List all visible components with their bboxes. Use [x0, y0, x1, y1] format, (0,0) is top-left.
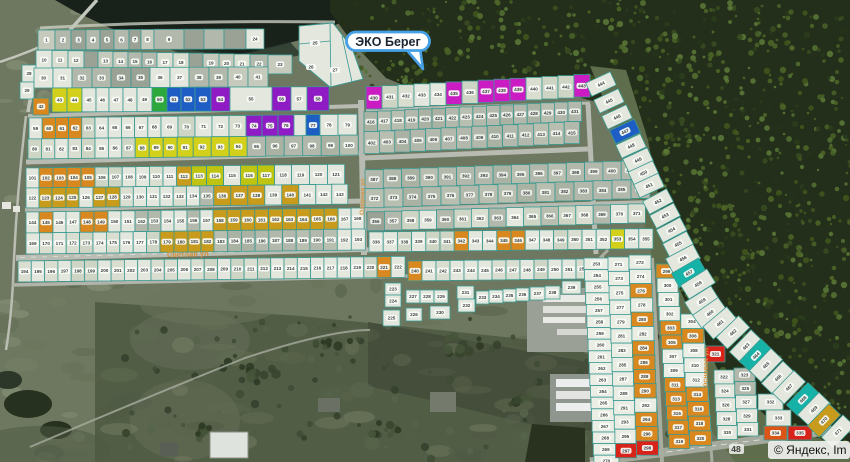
svg-text:220: 220 [367, 265, 375, 270]
svg-text:258: 258 [596, 320, 604, 325]
svg-text:410: 410 [491, 134, 499, 139]
svg-text:173: 173 [82, 241, 90, 246]
svg-text:115: 115 [228, 173, 236, 178]
svg-text:153: 153 [151, 219, 159, 224]
svg-text:14: 14 [118, 59, 124, 64]
svg-text:210: 210 [234, 267, 242, 272]
svg-text:145: 145 [42, 220, 50, 225]
svg-text:321: 321 [712, 352, 720, 357]
svg-text:426: 426 [503, 113, 511, 118]
svg-text:168: 168 [354, 216, 362, 221]
svg-text:440: 440 [530, 86, 538, 91]
svg-text:368: 368 [581, 213, 589, 218]
svg-text:76: 76 [283, 123, 289, 128]
svg-text:142: 142 [320, 192, 328, 197]
svg-text:329: 329 [743, 413, 751, 418]
svg-text:37: 37 [177, 75, 183, 80]
svg-text:82: 82 [59, 146, 65, 151]
svg-text:437: 437 [482, 89, 490, 94]
svg-text:370: 370 [615, 212, 623, 217]
svg-text:322: 322 [720, 375, 728, 380]
svg-text:395: 395 [517, 172, 525, 177]
svg-text:105: 105 [84, 175, 92, 180]
svg-text:166: 166 [327, 217, 335, 222]
svg-text:79: 79 [345, 122, 351, 127]
svg-text:137: 137 [235, 193, 243, 198]
svg-text:60: 60 [46, 126, 52, 131]
svg-text:147: 147 [69, 220, 77, 225]
svg-text:286: 286 [640, 360, 648, 365]
svg-text:441: 441 [546, 85, 554, 90]
svg-text:336: 336 [372, 240, 380, 245]
svg-text:337: 337 [386, 239, 394, 244]
svg-text:24: 24 [252, 37, 258, 42]
svg-text:159: 159 [230, 218, 238, 223]
svg-text:306: 306 [689, 334, 697, 339]
svg-text:© Яндекс, Im: © Яндекс, Im [774, 443, 847, 457]
svg-text:218: 218 [340, 265, 348, 270]
svg-text:344: 344 [486, 238, 494, 243]
svg-text:141: 141 [303, 192, 311, 197]
svg-text:219: 219 [353, 265, 361, 270]
svg-text:162: 162 [272, 217, 280, 222]
svg-text:358: 358 [407, 218, 415, 223]
svg-text:355: 355 [642, 236, 650, 241]
svg-text:163: 163 [286, 217, 294, 222]
svg-text:300: 300 [664, 283, 672, 288]
svg-text:241: 241 [425, 268, 433, 273]
svg-text:126: 126 [82, 195, 90, 200]
svg-text:205: 205 [167, 267, 175, 272]
svg-text:229: 229 [437, 294, 445, 299]
svg-text:223: 223 [389, 287, 397, 292]
svg-text:318: 318 [696, 421, 704, 426]
svg-text:429: 429 [544, 111, 552, 116]
svg-text:96: 96 [272, 144, 278, 149]
svg-text:108: 108 [125, 175, 133, 180]
svg-text:90: 90 [168, 145, 174, 150]
svg-text:287: 287 [619, 377, 627, 382]
svg-text:1: 1 [45, 38, 48, 43]
svg-text:133: 133 [176, 194, 184, 199]
svg-text:369: 369 [598, 212, 606, 217]
svg-text:72: 72 [218, 124, 224, 129]
svg-text:199: 199 [87, 268, 95, 273]
svg-text:412: 412 [522, 133, 530, 138]
svg-text:187: 187 [272, 238, 280, 243]
svg-text:158: 158 [216, 218, 224, 223]
svg-text:256: 256 [594, 296, 602, 301]
svg-text:31: 31 [60, 76, 66, 81]
svg-text:6: 6 [120, 37, 123, 42]
svg-text:74: 74 [251, 124, 257, 129]
svg-text:407: 407 [445, 137, 453, 142]
svg-text:Светлая ул: Светлая ул [167, 249, 209, 259]
svg-text:64: 64 [99, 125, 105, 130]
svg-text:288: 288 [641, 374, 649, 379]
svg-text:328: 328 [723, 416, 731, 421]
svg-text:379: 379 [504, 191, 512, 196]
svg-text:316: 316 [694, 407, 702, 412]
svg-text:307: 307 [669, 354, 677, 359]
svg-text:259: 259 [596, 331, 604, 336]
svg-text:224: 224 [389, 299, 397, 304]
svg-text:246: 246 [495, 268, 503, 273]
svg-text:161: 161 [258, 217, 266, 222]
svg-text:191: 191 [327, 238, 335, 243]
svg-text:228: 228 [423, 294, 431, 299]
svg-text:302: 302 [666, 311, 674, 316]
svg-text:83: 83 [72, 146, 78, 151]
svg-text:418: 418 [394, 118, 402, 123]
svg-text:42: 42 [38, 104, 44, 109]
svg-text:233: 233 [479, 295, 487, 300]
svg-text:204: 204 [154, 268, 162, 273]
svg-text:381: 381 [542, 190, 550, 195]
svg-text:103: 103 [56, 175, 64, 180]
svg-text:394: 394 [498, 172, 506, 177]
svg-text:423: 423 [462, 115, 470, 120]
svg-text:387: 387 [370, 177, 378, 182]
svg-text:101: 101 [29, 176, 37, 181]
svg-text:54: 54 [218, 97, 224, 102]
svg-text:312: 312 [692, 377, 700, 382]
svg-text:333: 333 [775, 416, 783, 421]
svg-text:296: 296 [643, 431, 651, 436]
svg-text:56: 56 [279, 97, 285, 102]
svg-text:422: 422 [449, 115, 457, 120]
svg-text:364: 364 [511, 215, 519, 220]
svg-text:45: 45 [86, 98, 92, 103]
svg-text:111: 111 [166, 174, 174, 179]
svg-text:100: 100 [345, 143, 353, 148]
svg-text:179: 179 [163, 240, 171, 245]
svg-text:91: 91 [183, 145, 189, 150]
svg-text:334: 334 [772, 431, 780, 436]
svg-text:123: 123 [42, 196, 50, 201]
svg-text:35: 35 [138, 75, 144, 80]
svg-text:352: 352 [599, 237, 607, 242]
svg-text:196: 196 [47, 269, 55, 274]
svg-text:20: 20 [224, 61, 230, 66]
svg-text:242: 242 [439, 268, 447, 273]
svg-text:378: 378 [485, 192, 493, 197]
svg-text:362: 362 [476, 216, 484, 221]
svg-text:309: 309 [670, 368, 678, 373]
svg-text:131: 131 [149, 194, 157, 199]
svg-text:10: 10 [41, 57, 47, 62]
svg-text:2: 2 [62, 38, 65, 43]
svg-text:215: 215 [300, 266, 308, 271]
svg-text:125: 125 [69, 195, 77, 200]
svg-text:433: 433 [418, 93, 426, 98]
svg-text:405: 405 [414, 138, 422, 143]
svg-text:185: 185 [244, 239, 252, 244]
svg-text:278: 278 [638, 303, 646, 308]
svg-text:92: 92 [200, 145, 206, 150]
svg-text:255: 255 [594, 285, 602, 290]
svg-text:277: 277 [616, 305, 624, 310]
svg-text:346: 346 [514, 238, 522, 243]
svg-text:380: 380 [523, 191, 531, 196]
svg-text:276: 276 [637, 288, 645, 293]
svg-text:180: 180 [177, 239, 185, 244]
svg-text:122: 122 [29, 196, 37, 201]
svg-text:409: 409 [476, 135, 484, 140]
svg-text:438: 438 [498, 88, 506, 93]
svg-text:393: 393 [480, 173, 488, 178]
svg-text:404: 404 [399, 139, 407, 144]
svg-text:280: 280 [638, 317, 646, 322]
svg-text:330: 330 [723, 430, 731, 435]
svg-text:47: 47 [113, 97, 119, 102]
svg-text:192: 192 [340, 237, 348, 242]
svg-text:292: 292 [642, 403, 650, 408]
svg-text:174: 174 [96, 240, 104, 245]
svg-text:3: 3 [77, 38, 80, 43]
svg-text:402: 402 [368, 140, 376, 145]
svg-text:176: 176 [123, 240, 131, 245]
svg-text:63: 63 [86, 126, 92, 131]
svg-text:268: 268 [601, 436, 609, 441]
svg-text:169: 169 [29, 241, 37, 246]
svg-text:226: 226 [410, 312, 418, 317]
svg-text:225: 225 [388, 316, 396, 321]
svg-text:15: 15 [132, 59, 138, 64]
svg-text:214: 214 [287, 266, 295, 271]
svg-text:310: 310 [691, 363, 699, 368]
svg-text:30: 30 [41, 76, 47, 81]
svg-text:213: 213 [274, 266, 282, 271]
svg-text:237: 237 [534, 291, 542, 296]
svg-text:314: 314 [693, 392, 701, 397]
svg-text:209: 209 [220, 267, 228, 272]
svg-text:154: 154 [164, 219, 172, 224]
svg-text:349: 349 [557, 237, 565, 242]
svg-text:341: 341 [443, 239, 451, 244]
svg-text:261: 261 [597, 354, 605, 359]
svg-text:400: 400 [608, 169, 616, 174]
svg-text:85: 85 [99, 146, 105, 151]
svg-text:260: 260 [597, 343, 605, 348]
svg-text:325: 325 [741, 386, 749, 391]
svg-text:165: 165 [313, 217, 321, 222]
svg-text:339: 339 [415, 239, 423, 244]
svg-text:304: 304 [688, 319, 696, 324]
svg-text:139: 139 [269, 193, 277, 198]
svg-text:152: 152 [138, 219, 146, 224]
svg-text:272: 272 [636, 260, 644, 265]
svg-text:257: 257 [595, 308, 603, 313]
svg-text:138: 138 [252, 193, 260, 198]
svg-text:206: 206 [180, 267, 188, 272]
svg-text:171: 171 [56, 241, 64, 246]
svg-text:383: 383 [580, 189, 588, 194]
svg-text:189: 189 [299, 238, 307, 243]
svg-text:197: 197 [61, 269, 69, 274]
svg-text:120: 120 [315, 172, 323, 177]
svg-text:49: 49 [142, 97, 148, 102]
svg-text:202: 202 [127, 268, 135, 273]
svg-text:89: 89 [154, 145, 160, 150]
svg-text:88: 88 [140, 145, 146, 150]
svg-text:87: 87 [126, 146, 132, 151]
svg-text:178: 178 [149, 240, 157, 245]
svg-text:140: 140 [286, 193, 294, 198]
svg-text:149: 149 [97, 219, 105, 224]
svg-text:136: 136 [218, 193, 226, 198]
svg-text:73: 73 [235, 124, 241, 129]
svg-text:420: 420 [421, 117, 429, 122]
svg-text:183: 183 [217, 239, 225, 244]
svg-text:48: 48 [127, 97, 133, 102]
svg-text:408: 408 [460, 136, 468, 141]
svg-text:430: 430 [370, 96, 378, 101]
svg-text:415: 415 [568, 130, 576, 135]
svg-text:116: 116 [245, 173, 253, 178]
svg-text:203: 203 [140, 268, 148, 273]
svg-text:239: 239 [568, 285, 576, 290]
svg-text:201: 201 [114, 268, 122, 273]
svg-text:335: 335 [796, 431, 804, 436]
svg-text:290: 290 [641, 389, 649, 394]
svg-text:289: 289 [620, 391, 628, 396]
svg-text:331: 331 [744, 427, 752, 432]
svg-text:61: 61 [59, 126, 65, 131]
svg-text:356: 356 [372, 219, 380, 224]
svg-text:254: 254 [593, 273, 601, 278]
svg-text:262: 262 [598, 366, 606, 371]
svg-text:244: 244 [467, 268, 475, 273]
svg-text:227: 227 [409, 294, 417, 299]
svg-text:319: 319 [675, 439, 683, 444]
svg-text:19: 19 [208, 61, 214, 66]
svg-text:303: 303 [667, 326, 675, 331]
svg-text:155: 155 [177, 218, 185, 223]
svg-text:97: 97 [291, 144, 297, 149]
svg-text:29: 29 [24, 88, 30, 93]
svg-text:372: 372 [371, 196, 379, 201]
svg-text:284: 284 [640, 346, 648, 351]
svg-text:9: 9 [168, 37, 171, 42]
svg-text:134: 134 [189, 194, 197, 199]
svg-text:200: 200 [101, 268, 109, 273]
svg-text:413: 413 [537, 132, 545, 137]
svg-text:269: 269 [602, 447, 610, 452]
svg-text:249: 249 [537, 267, 545, 272]
svg-text:385: 385 [618, 187, 626, 192]
svg-text:221: 221 [380, 265, 388, 270]
svg-text:274: 274 [637, 274, 645, 279]
svg-text:118: 118 [279, 173, 287, 178]
svg-text:350: 350 [571, 237, 579, 242]
svg-text:416: 416 [367, 119, 375, 124]
svg-text:102: 102 [42, 176, 50, 181]
svg-text:392: 392 [462, 174, 470, 179]
svg-text:363: 363 [494, 215, 502, 220]
svg-text:390: 390 [425, 175, 433, 180]
svg-text:110: 110 [152, 174, 160, 179]
svg-text:106: 106 [98, 175, 106, 180]
svg-text:119: 119 [297, 172, 305, 177]
svg-text:439: 439 [514, 87, 522, 92]
svg-text:251: 251 [565, 267, 573, 272]
svg-text:107: 107 [112, 175, 120, 180]
svg-text:360: 360 [441, 217, 449, 222]
svg-text:160: 160 [244, 218, 252, 223]
svg-text:428: 428 [530, 111, 538, 116]
svg-text:150: 150 [111, 219, 119, 224]
svg-text:59: 59 [33, 126, 39, 131]
svg-text:104: 104 [70, 175, 78, 180]
svg-text:347: 347 [528, 238, 536, 243]
svg-text:361: 361 [459, 216, 467, 221]
svg-text:22: 22 [256, 62, 262, 67]
svg-text:208: 208 [207, 267, 215, 272]
svg-text:68: 68 [152, 125, 158, 130]
svg-text:295: 295 [622, 434, 630, 439]
svg-text:243: 243 [453, 268, 461, 273]
svg-text:403: 403 [383, 140, 391, 145]
svg-text:399: 399 [590, 169, 598, 174]
svg-text:245: 245 [481, 268, 489, 273]
svg-text:25: 25 [312, 41, 318, 46]
svg-text:313: 313 [672, 397, 680, 402]
svg-text:327: 327 [742, 400, 750, 405]
svg-text:52: 52 [185, 97, 191, 102]
svg-text:80: 80 [32, 147, 38, 152]
svg-text:332: 332 [767, 400, 775, 405]
svg-text:234: 234 [492, 294, 500, 299]
svg-text:343: 343 [472, 238, 480, 243]
svg-text:51: 51 [171, 97, 177, 102]
svg-text:26: 26 [308, 65, 314, 70]
svg-text:324: 324 [721, 389, 729, 394]
svg-text:231: 231 [462, 290, 470, 295]
svg-text:156: 156 [190, 218, 198, 223]
svg-text:411: 411 [507, 133, 515, 138]
svg-text:121: 121 [332, 172, 340, 177]
svg-text:151: 151 [124, 219, 132, 224]
svg-text:282: 282 [639, 331, 647, 336]
svg-text:58: 58 [315, 96, 321, 101]
svg-text:71: 71 [201, 124, 207, 129]
svg-text:235: 235 [506, 293, 514, 298]
svg-text:5: 5 [106, 37, 109, 42]
svg-text:175: 175 [109, 240, 117, 245]
svg-text:70: 70 [184, 124, 190, 129]
svg-text:299: 299 [663, 269, 671, 274]
svg-text:164: 164 [299, 217, 307, 222]
svg-text:81: 81 [46, 147, 52, 152]
svg-text:294: 294 [642, 417, 650, 422]
svg-text:397: 397 [553, 171, 561, 176]
svg-text:216: 216 [313, 266, 321, 271]
svg-text:39: 39 [216, 75, 222, 80]
svg-text:353: 353 [614, 237, 622, 242]
svg-text:17: 17 [162, 60, 168, 65]
svg-text:431: 431 [386, 95, 394, 100]
svg-text:62: 62 [73, 126, 79, 131]
svg-text:442: 442 [562, 85, 570, 90]
svg-text:195: 195 [34, 269, 42, 274]
svg-text:65: 65 [112, 125, 118, 130]
svg-text:8: 8 [146, 37, 149, 42]
svg-text:374: 374 [409, 195, 417, 200]
svg-text:431: 431 [571, 109, 579, 114]
svg-text:436: 436 [466, 90, 474, 95]
svg-text:217: 217 [327, 265, 335, 270]
